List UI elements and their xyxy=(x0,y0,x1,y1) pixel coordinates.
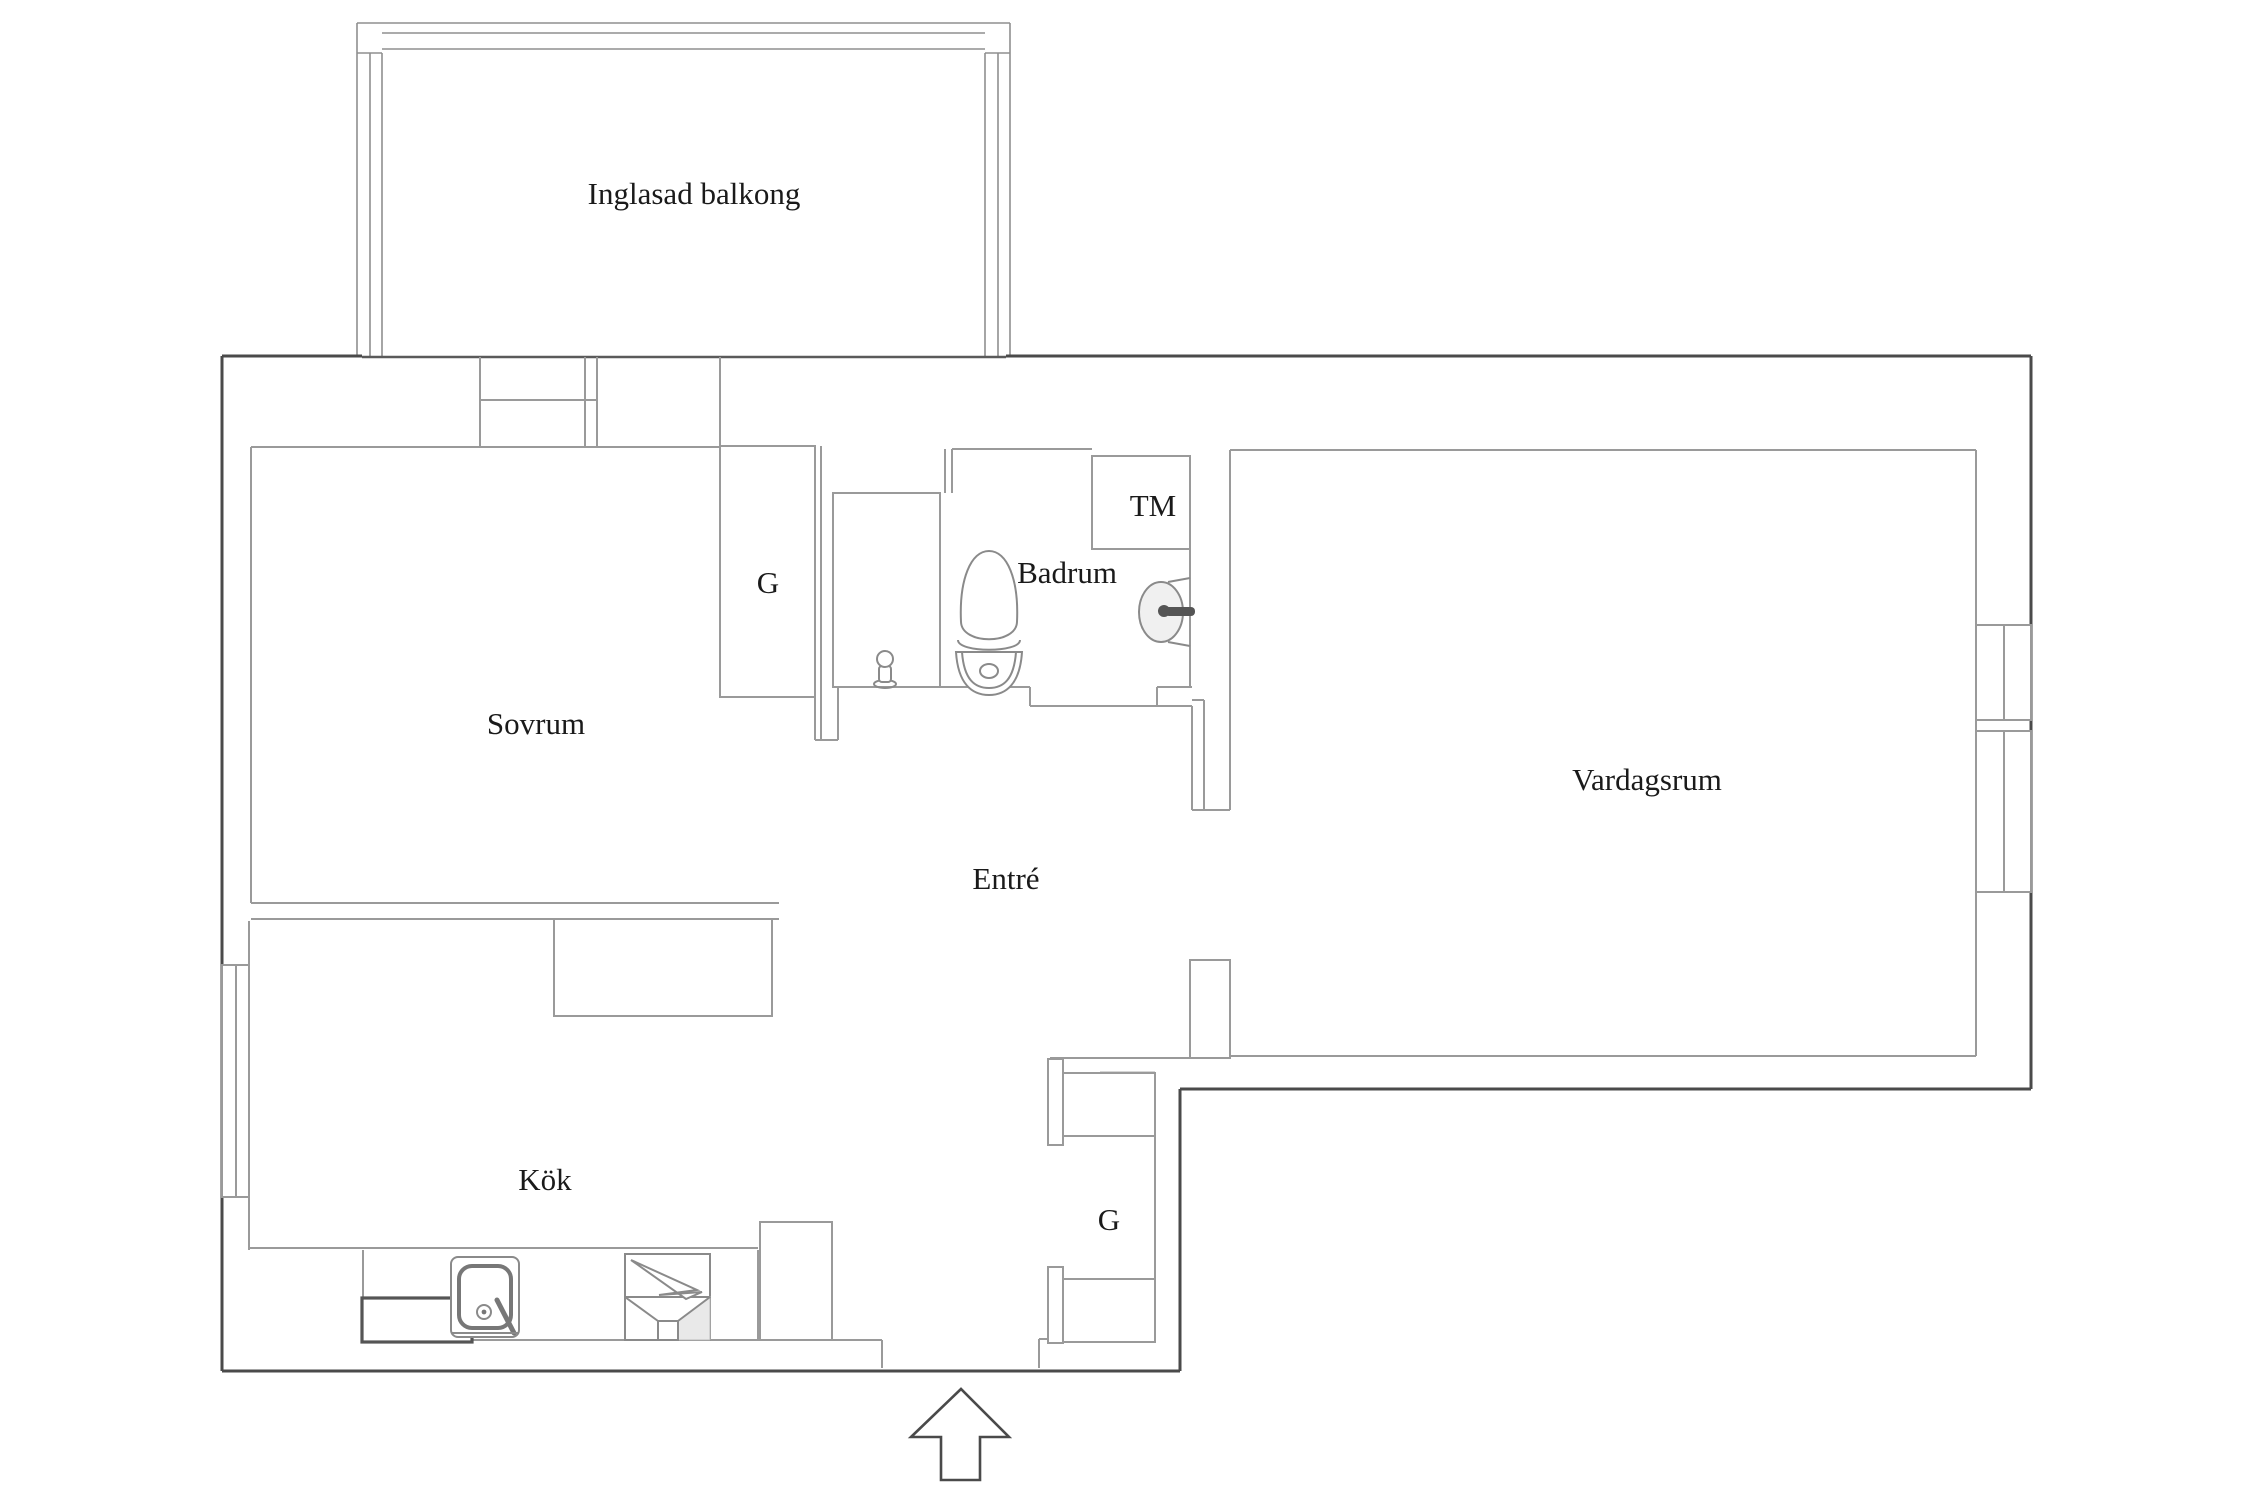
label-sovrum: Sovrum xyxy=(487,706,585,741)
window-right-upper xyxy=(1976,625,2031,720)
kitchen-sink-icon xyxy=(451,1257,519,1337)
hall-closet-tab-top xyxy=(1048,1059,1063,1145)
hall-closet-tab-bottom xyxy=(1048,1267,1063,1343)
label-tm: TM xyxy=(1130,488,1177,523)
floor-plan-canvas: Inglasad balkong Sovrum G Badrum TM Vard… xyxy=(0,0,2250,1500)
window-right-lower xyxy=(1976,731,2031,892)
label-badrum: Badrum xyxy=(1017,555,1117,590)
entrance-arrow-icon xyxy=(911,1389,1009,1480)
washbasin-icon xyxy=(1139,578,1195,646)
livingroom-wall-pier xyxy=(1190,960,1230,1058)
window-left-kitchen xyxy=(222,965,249,1197)
kitchen-wall-pier xyxy=(760,1222,832,1340)
label-bedroom-closet-g: G xyxy=(757,565,779,600)
hall-closet-cabinet-bottom xyxy=(1063,1279,1155,1342)
bedroom-kitchen-wardrobe xyxy=(554,919,772,1016)
label-entre: Entré xyxy=(972,861,1039,896)
label-hall-closet-g: G xyxy=(1098,1202,1120,1237)
stove-icon xyxy=(625,1254,710,1340)
hall-closet-cabinet-top xyxy=(1063,1073,1155,1136)
label-kok: Kök xyxy=(518,1162,572,1197)
label-inglasad-balkong: Inglasad balkong xyxy=(588,176,801,211)
floor-plan-svg: Inglasad balkong Sovrum G Badrum TM Vard… xyxy=(0,0,2250,1500)
toilet-icon xyxy=(956,551,1022,695)
label-vardagsrum: Vardagsrum xyxy=(1572,762,1722,797)
